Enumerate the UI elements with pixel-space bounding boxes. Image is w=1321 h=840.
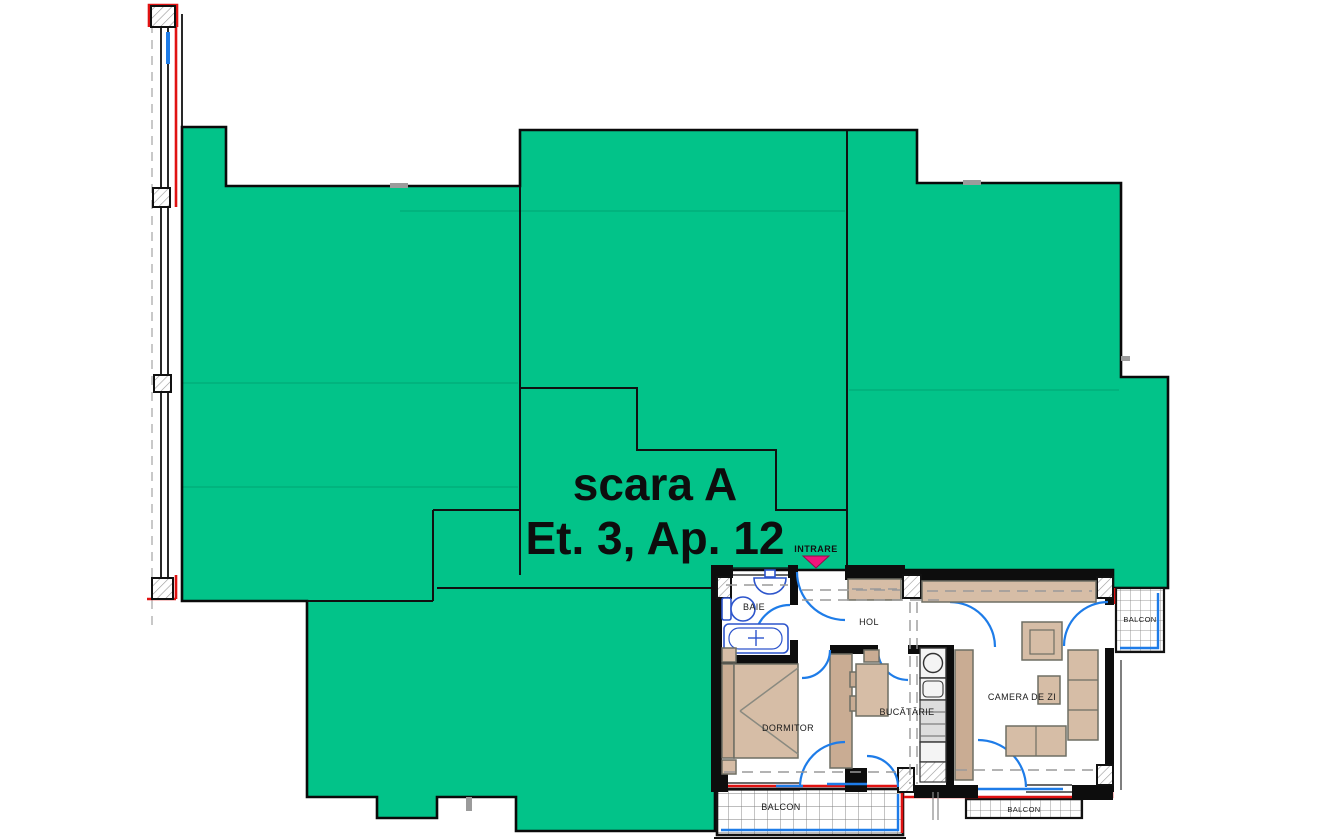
balcony-main: BALCON bbox=[714, 789, 906, 838]
column-pillar bbox=[151, 6, 175, 27]
living-room-door-arc bbox=[950, 602, 995, 647]
east-balcony-door-arc bbox=[1064, 602, 1108, 646]
column-pillar bbox=[898, 768, 914, 792]
partition-wall bbox=[830, 654, 852, 768]
balcony-east: BALCON bbox=[1116, 588, 1164, 652]
room-label-bathroom: BAIE bbox=[743, 602, 765, 612]
room-label-kitchen: BUCĂTĂRIE bbox=[879, 707, 934, 717]
entrance-label: INTRARE bbox=[794, 544, 838, 554]
room-label-living-room: CAMERA DE ZI bbox=[988, 692, 1056, 702]
column-pillar bbox=[717, 577, 731, 598]
bed-headboard bbox=[722, 664, 734, 758]
column-pillar bbox=[152, 578, 173, 599]
nightstand bbox=[722, 648, 736, 662]
column-pillar bbox=[903, 575, 921, 598]
balcony-living: BALCON bbox=[966, 799, 1082, 818]
chair bbox=[864, 650, 879, 662]
column-pillar bbox=[153, 188, 170, 207]
sofa-right bbox=[1068, 650, 1098, 740]
room-label-hallway: HOL bbox=[859, 617, 879, 627]
bedroom-door-arc bbox=[802, 650, 830, 678]
entrance-door-arc bbox=[797, 572, 845, 620]
room-label-bedroom: DORMITOR bbox=[762, 723, 814, 733]
left-facade-structure bbox=[147, 5, 182, 628]
floor-plan-canvas: scara A Et. 3, Ap. 12 INTRARE BALCON BAL… bbox=[0, 0, 1321, 840]
kitchen-cabinet bbox=[920, 742, 946, 762]
apartment-plan: BALCON BALCON BALCON bbox=[711, 565, 1164, 838]
floor-plan-page: scara A Et. 3, Ap. 12 INTRARE BALCON BAL… bbox=[0, 0, 1321, 840]
kitchen-cabinet bbox=[920, 762, 946, 782]
toilet bbox=[722, 598, 731, 620]
unit-title: Et. 3, Ap. 12 bbox=[525, 512, 784, 564]
room-label-balcony-east: BALCON bbox=[1123, 615, 1156, 624]
tall-cabinet bbox=[955, 650, 973, 780]
column-pillar bbox=[154, 375, 171, 392]
washbasin bbox=[754, 578, 786, 594]
room-label-balcony-main: BALCON bbox=[761, 802, 800, 812]
facade-wall-lines bbox=[161, 14, 182, 578]
room-label-balcony-living: BALCON bbox=[1007, 805, 1040, 814]
column-pillar bbox=[1097, 765, 1113, 785]
staircase-title: scara A bbox=[573, 458, 738, 510]
column-pillar bbox=[1097, 577, 1113, 598]
bed bbox=[734, 664, 798, 758]
